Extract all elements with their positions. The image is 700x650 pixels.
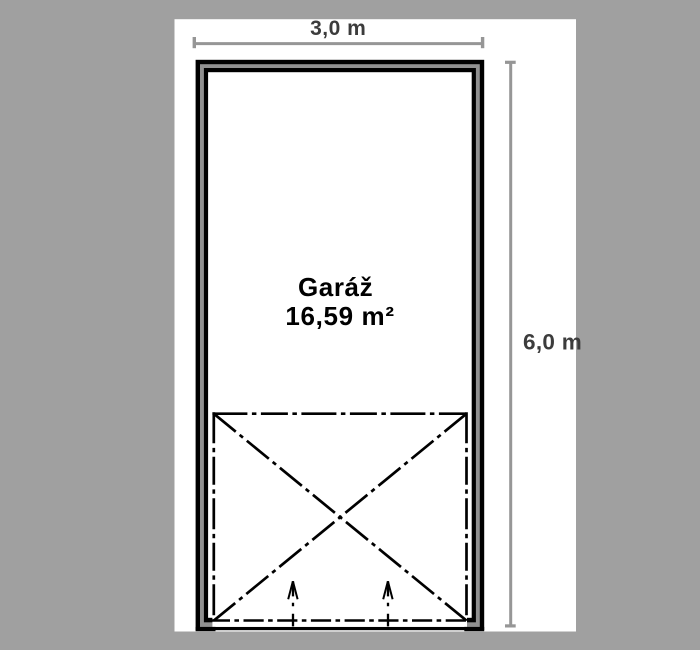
svg-text:Garáž: Garáž: [298, 272, 373, 302]
svg-text:3,0 m: 3,0 m: [310, 17, 366, 40]
svg-text:6,0 m: 6,0 m: [523, 330, 582, 355]
svg-text:16,59 m²: 16,59 m²: [285, 301, 394, 331]
